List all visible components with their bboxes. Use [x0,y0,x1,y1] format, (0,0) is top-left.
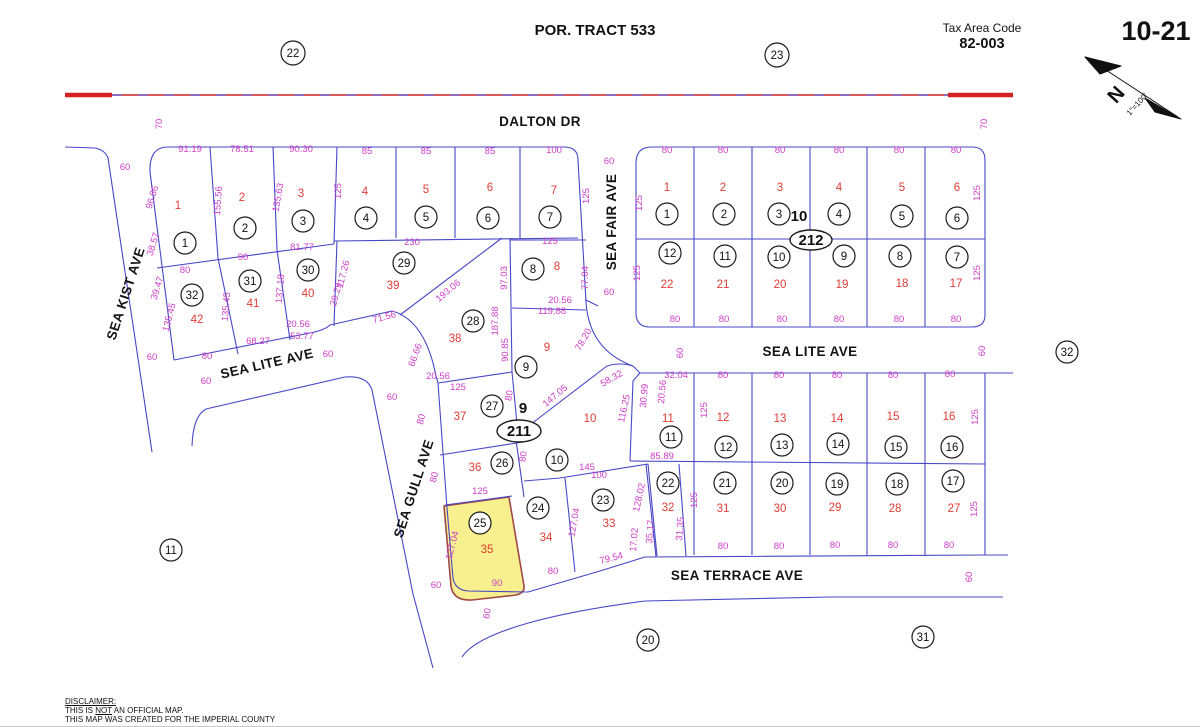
parcel-line [586,300,598,306]
lot-number: 10 [584,413,597,425]
dimension-label: 80 [774,541,785,552]
dimension-label: 60 [387,392,398,403]
assessor-parcel-map-page: POR. TRACT 533Tax Area Code82-00310-21N1… [0,0,1200,727]
north-arrow-letter: N [1104,82,1130,107]
dimension-label: 90.30 [289,144,313,155]
dimension-label: 96.86 [144,184,161,210]
dimension-label: 70 [979,119,990,130]
dimension-label: 78.51 [230,144,254,155]
dimension-label: 135.63 [271,182,287,213]
dimension-label: 85 [421,146,432,157]
dimension-label: 125 [970,409,981,425]
circled-parcel-number: 3 [300,216,306,228]
lot-number: 20 [774,279,787,291]
dimension-label: 128.02 [631,482,648,513]
lot-number: 3 [298,188,304,200]
dimension-label: 80 [180,265,191,276]
dimension-label: 125 [450,382,466,393]
dimension-label: 60 [481,607,494,619]
circled-parcel-number: 5 [423,212,429,224]
dimension-label: 135.45 [220,292,233,322]
lot-number: 35 [481,544,494,556]
lot-number: 3 [777,182,783,194]
dimension-label: 100 [546,145,562,156]
dimension-label: 20.56 [656,379,669,404]
circled-parcel-number: 23 [771,50,784,62]
dimension-label: 80 [834,145,845,156]
circled-parcel-number: 15 [890,442,903,454]
block-ellipse-number: 212 [798,232,823,249]
lot-number: 1 [664,182,670,194]
parcel-line [440,442,523,455]
dimension-label: 81.77 [290,242,314,253]
disclaimer: DISCLAIMER: THIS IS NOT AN OFFICIAL MAP.… [65,697,275,724]
disclaimer-line2: THIS IS NOT AN OFFICIAL MAP. [65,706,275,715]
dimension-label: 80 [719,314,730,325]
street-name: SEA FAIR AVE [604,174,619,271]
street-name: SEA GULL AVE [391,438,437,540]
lot-number: 4 [362,186,369,198]
circled-parcel-number: 6 [954,213,960,225]
circled-parcel-number: 26 [496,458,509,470]
lot-number: 41 [247,298,260,310]
lot-number: 22 [661,279,674,291]
dimension-label: 80 [670,314,681,325]
lot-number: 36 [469,462,482,474]
dimension-label: 60 [604,287,615,298]
lot-number: 28 [889,503,902,515]
tax-area-code-value: 82-003 [959,36,1004,52]
dimension-label: 90 [238,252,249,263]
street-name: SEA LITE AVE [762,344,857,359]
disclaimer-title: DISCLAIMER: [65,697,275,706]
dimension-label: 80 [503,389,516,401]
lot-number: 9 [544,342,550,354]
lot-number: 30 [774,503,787,515]
lot-number: 27 [948,503,961,515]
circled-parcel-number: 17 [947,476,960,488]
dimension-label: 80 [662,145,673,156]
lot-number: 42 [191,314,204,326]
circled-parcel-number: 18 [891,479,904,491]
circled-parcel-number: 11 [719,251,731,263]
dimension-label: 125 [632,265,643,281]
circled-parcel-number: 20 [642,635,655,647]
dimension-label: 125 [972,185,983,201]
page-number: 10-21 [1121,16,1190,46]
parcel-line [510,238,518,434]
dimension-label: 85 [485,146,496,157]
dimension-label: 20.56 [426,371,450,382]
circled-parcel-number: 8 [530,264,536,276]
dimension-label: 80 [894,314,905,325]
street-name: DALTON DR [499,114,581,129]
dimension-label: 60 [147,352,158,363]
block-ellipse-number: 211 [507,423,531,440]
dimension-label: 32.04 [664,370,688,381]
dimension-label: 77.04 [580,266,591,290]
dimension-label: 78.20 [573,327,594,353]
dimension-label: 70 [154,119,165,130]
circled-parcel-number: 5 [899,211,905,223]
circled-parcel-number: 19 [831,479,844,491]
dimension-label: 80 [832,370,843,381]
dimension-label: 80 [415,413,428,426]
dimension-label: 80 [944,540,955,551]
parcel-line [679,464,686,556]
circled-parcel-number: 9 [841,251,847,263]
disclaimer-line3: THIS MAP WAS CREATED FOR THE IMPERIAL CO… [65,715,275,724]
dimension-label: 60 [977,346,988,357]
circled-parcel-number: 28 [467,316,480,328]
dimension-label: 116.25 [616,393,633,423]
dimension-label: 20.56 [548,295,572,306]
dimension-label: 80 [718,145,729,156]
circled-parcel-number: 10 [551,455,564,467]
dimension-label: 135.45 [161,302,179,333]
dimension-label: 125 [699,402,710,418]
lot-number: 17 [950,278,963,290]
dimension-label: 31.35 [674,516,687,541]
tax-area-code-label: Tax Area Code [943,21,1022,35]
north-arrow-head [1145,98,1181,119]
dimension-label: 58.32 [599,368,625,389]
dimension-label: 66.66 [406,342,424,368]
dimension-label: 60 [604,156,615,167]
dimension-label: 60 [675,348,686,359]
dimension-label: 80 [774,370,785,381]
dimension-label: 125 [542,236,558,247]
circled-parcel-number: 23 [597,495,610,507]
lot-number: 7 [551,185,557,197]
lot-number: 2 [720,182,726,194]
dimension-label: 53.77 [290,331,314,342]
lot-number: 40 [302,288,315,300]
dimension-label: 193.06 [434,278,463,305]
lot-number: 4 [836,182,843,194]
lot-number: 2 [239,192,245,204]
dimension-label: 80 [517,450,530,462]
dimension-label: 119.88 [538,306,566,317]
dimension-label: 137.18 [274,274,287,304]
dimension-label: 125 [969,501,980,517]
lot-number: 6 [487,182,493,194]
dimension-label: 80 [202,351,213,362]
dimension-label: 125 [581,188,592,204]
lot-number: 5 [423,184,429,196]
circled-parcel-number: 21 [719,478,732,490]
dimension-label: 35.17 [644,519,657,544]
lot-number: 29 [829,502,842,514]
lot-number: 15 [887,411,900,423]
circled-parcel-number: 13 [776,440,789,452]
dimension-label: 60 [964,572,975,583]
dimension-label: 60 [431,580,442,591]
circled-parcel-number: 1 [182,238,188,250]
circled-parcel-number: 30 [302,265,315,277]
parcel-line [630,461,985,464]
circled-parcel-number: 6 [485,213,491,225]
dimension-label: 125 [689,492,700,508]
circled-parcel-number: 3 [776,209,782,221]
lot-number: 16 [943,411,956,423]
map-title: POR. TRACT 533 [535,22,656,39]
dimension-label: 60 [201,376,212,387]
circled-parcel-number: 29 [398,258,411,270]
lot-number: 21 [717,279,730,291]
circled-parcel-number: 25 [474,518,487,530]
dimension-label: 80 [718,541,729,552]
circled-parcel-number: 11 [665,432,677,444]
dimension-label: 230 [404,237,420,248]
circled-parcel-number: 4 [836,209,843,221]
circled-parcel-number: 14 [832,439,845,451]
circled-parcel-number: 11 [165,545,177,557]
block-number: 10 [791,208,808,225]
circled-parcel-number: 20 [776,478,789,490]
block-number: 9 [519,400,527,417]
circled-parcel-number: 16 [946,442,959,454]
north-arrow-head [1085,57,1121,74]
dimension-label: 187.88 [490,306,501,335]
circled-parcel-number: 31 [917,632,930,644]
dimension-label: 80 [548,566,559,577]
lot-number: 5 [899,182,905,194]
lot-number: 19 [836,279,849,291]
dimension-label: 90 [492,578,503,589]
dimension-label: 125 [472,486,488,497]
lot-number: 8 [554,261,560,273]
circled-parcel-number: 8 [897,251,903,263]
parcel-map: POR. TRACT 533Tax Area Code82-00310-21N1… [0,0,1200,726]
dimension-label: 20.56 [286,319,310,330]
parcel-line [633,366,1013,373]
dimension-label: 80 [951,314,962,325]
dimension-label: 80 [888,370,899,381]
lot-number: 33 [603,518,616,530]
dimension-label: 85.89 [650,451,674,462]
dimension-label: 117.26 [335,259,353,289]
circled-parcel-number: 9 [523,362,529,374]
lot-number: 13 [774,413,787,425]
dimension-label: 17.02 [628,527,641,552]
circled-parcel-number: 12 [664,248,677,260]
dimension-label: 80 [428,471,441,484]
dimension-label: 97.03 [499,266,510,290]
lot-number: 32 [662,502,675,514]
circled-parcel-number: 1 [664,209,670,221]
street-name: SEA KIST AVE [104,245,148,341]
circled-parcel-number: 32 [1061,347,1074,359]
lot-number: 6 [954,182,960,194]
dimension-label: 125 [634,195,645,211]
dimension-label: 71.56 [371,309,397,326]
lot-number: 12 [717,412,730,424]
lot-number: 11 [662,413,674,425]
dimension-label: 100 [591,470,607,481]
dimension-label: 80 [951,145,962,156]
circled-parcel-number: 7 [547,212,553,224]
dimension-label: 80 [945,369,956,380]
street-name: SEA LITE AVE [219,346,315,382]
dimension-label: 125 [972,265,983,281]
dimension-label: 60 [323,349,334,360]
circled-parcel-number: 7 [954,252,960,264]
circled-parcel-number: 12 [720,442,733,454]
parcel-line [516,440,524,497]
dimension-label: 155.56 [212,186,225,216]
dimension-label: 80 [830,540,841,551]
parcel-line [630,373,640,461]
circled-parcel-number: 2 [721,209,727,221]
dimension-label: 68.27 [246,336,270,347]
circled-parcel-number: 22 [287,48,300,60]
dimension-label: 80 [894,145,905,156]
dimension-label: 39.47 [149,275,166,301]
circled-parcel-number: 27 [486,401,499,413]
circled-parcel-number: 22 [662,478,675,490]
circled-parcel-number: 10 [773,252,786,264]
dimension-label: 91.19 [178,144,202,155]
dimension-label: 80 [777,314,788,325]
lot-number: 39 [387,280,400,292]
dimension-label: 90.85 [500,338,511,362]
circled-parcel-number: 2 [242,223,248,235]
map-scale: 1"=100' [1125,91,1150,117]
dimension-label: 80 [834,314,845,325]
dimension-label: 80 [775,145,786,156]
lot-number: 14 [831,413,844,425]
circled-parcel-number: 24 [532,503,545,515]
dimension-label: 30.99 [638,383,651,408]
lot-number: 34 [540,532,553,544]
lot-number: 31 [717,503,730,515]
dimension-label: 125 [333,183,344,199]
street-name: SEA TERRACE AVE [671,568,803,583]
parcel-line [400,238,502,315]
circled-parcel-number: 31 [244,276,257,288]
dimension-label: 60 [120,162,131,173]
circled-parcel-number: 4 [363,213,370,225]
dimension-label: 85 [362,146,373,157]
dimension-label: 80 [888,540,899,551]
dimension-label: 80 [718,370,729,381]
parcel-line [65,147,152,452]
lot-number: 1 [175,200,181,212]
circled-parcel-number: 32 [186,290,199,302]
lot-number: 37 [454,411,467,423]
lot-number: 18 [896,278,909,290]
lot-number: 38 [449,333,462,345]
